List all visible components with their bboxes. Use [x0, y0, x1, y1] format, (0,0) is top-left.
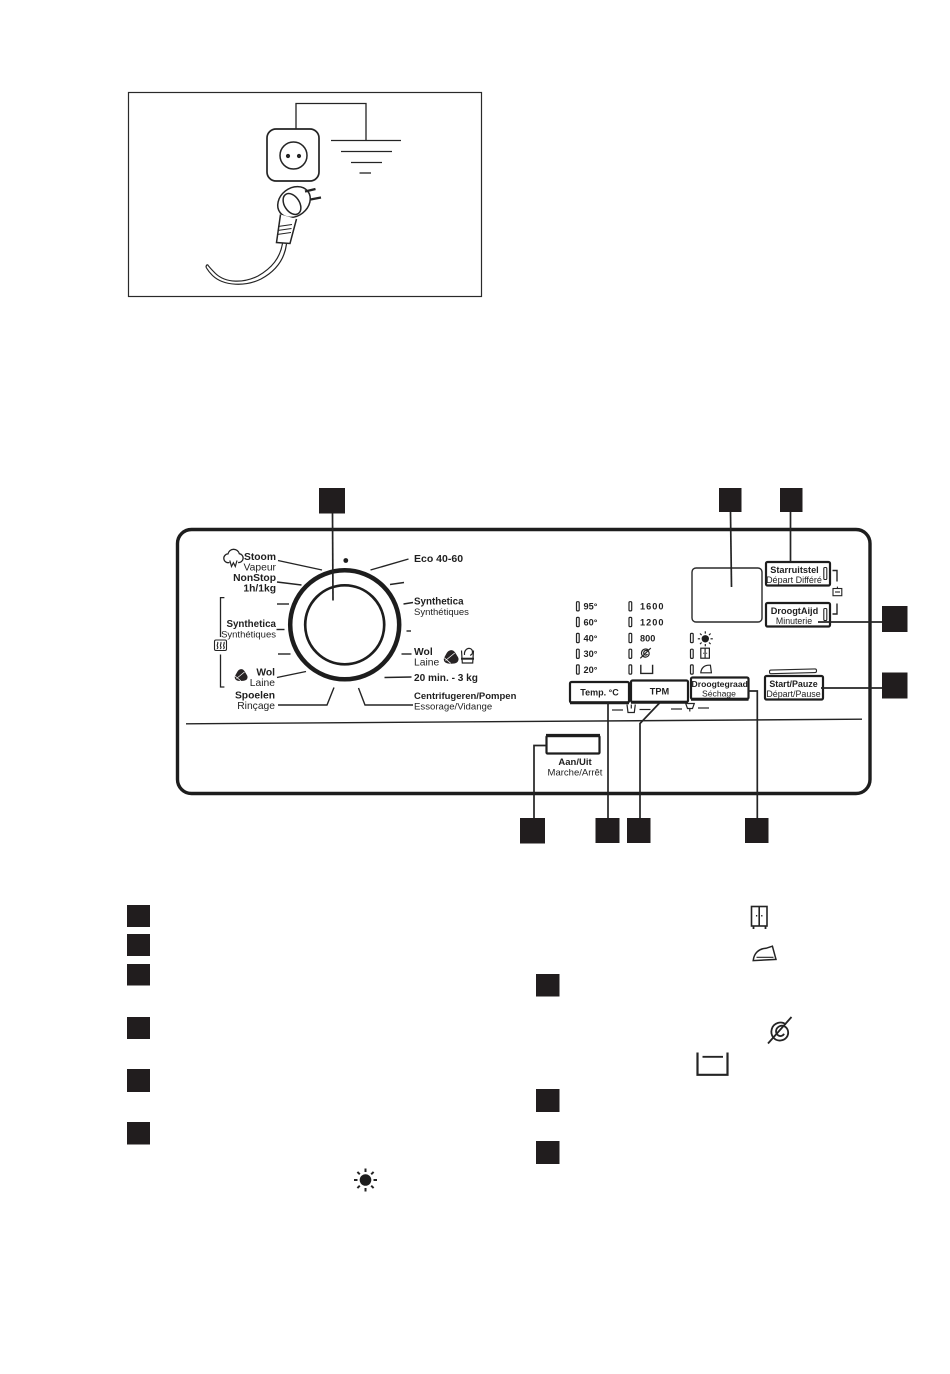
svg-text:Spoelen: Spoelen [235, 691, 275, 702]
svg-text:Droogtegraad: Droogtegraad [692, 679, 748, 689]
svg-text:800: 800 [640, 633, 655, 643]
svg-text:Laine: Laine [250, 678, 275, 689]
svg-text:Séchage: Séchage [702, 689, 736, 699]
svg-text:Start/Pauze: Start/Pauze [769, 679, 817, 689]
svg-text:Départ Différé: Départ Différé [766, 575, 822, 585]
svg-text:Aan/Uit: Aan/Uit [558, 757, 592, 768]
svg-text:DroogtAijd: DroogtAijd [771, 606, 818, 616]
svg-text:30°: 30° [584, 649, 598, 659]
svg-text:20°: 20° [584, 665, 598, 675]
svg-text:TPM: TPM [650, 687, 670, 697]
svg-text:Temp. °C: Temp. °C [580, 688, 619, 698]
svg-text:95°: 95° [584, 602, 598, 612]
svg-text:Centrifugeren/Pompen: Centrifugeren/Pompen [414, 691, 517, 702]
svg-text:Départ/Pause: Départ/Pause [766, 689, 820, 699]
svg-text:Eco 40-60: Eco 40-60 [414, 553, 463, 565]
svg-text:Minuterie: Minuterie [776, 616, 812, 626]
svg-text:40°: 40° [584, 633, 598, 643]
svg-text:Wol: Wol [414, 647, 433, 658]
svg-text:Synthétiques: Synthétiques [221, 630, 276, 641]
svg-text:1h/1kg: 1h/1kg [243, 584, 276, 595]
svg-text:Essorage/Vidange: Essorage/Vidange [414, 702, 492, 713]
svg-text:1600: 1600 [640, 602, 664, 612]
svg-text:1200: 1200 [640, 617, 664, 627]
svg-text:Wol: Wol [256, 668, 275, 679]
svg-text:Synthetica: Synthetica [226, 619, 276, 630]
svg-text:Synthétiques: Synthétiques [414, 607, 469, 618]
svg-text:Starruitstel: Starruitstel [770, 565, 819, 575]
svg-text:Vapeur: Vapeur [244, 563, 277, 574]
svg-text:Synthetica: Synthetica [414, 597, 464, 608]
svg-text:Rinçage: Rinçage [237, 701, 275, 712]
svg-text:Marche/Arrêt: Marche/Arrêt [548, 768, 603, 779]
svg-text:20 min. - 3 kg: 20 min. - 3 kg [414, 673, 478, 684]
svg-text:Stoom: Stoom [244, 552, 276, 563]
svg-text:Laine: Laine [414, 658, 439, 669]
svg-text:NonStop: NonStop [233, 573, 276, 584]
svg-text:60°: 60° [584, 617, 598, 627]
